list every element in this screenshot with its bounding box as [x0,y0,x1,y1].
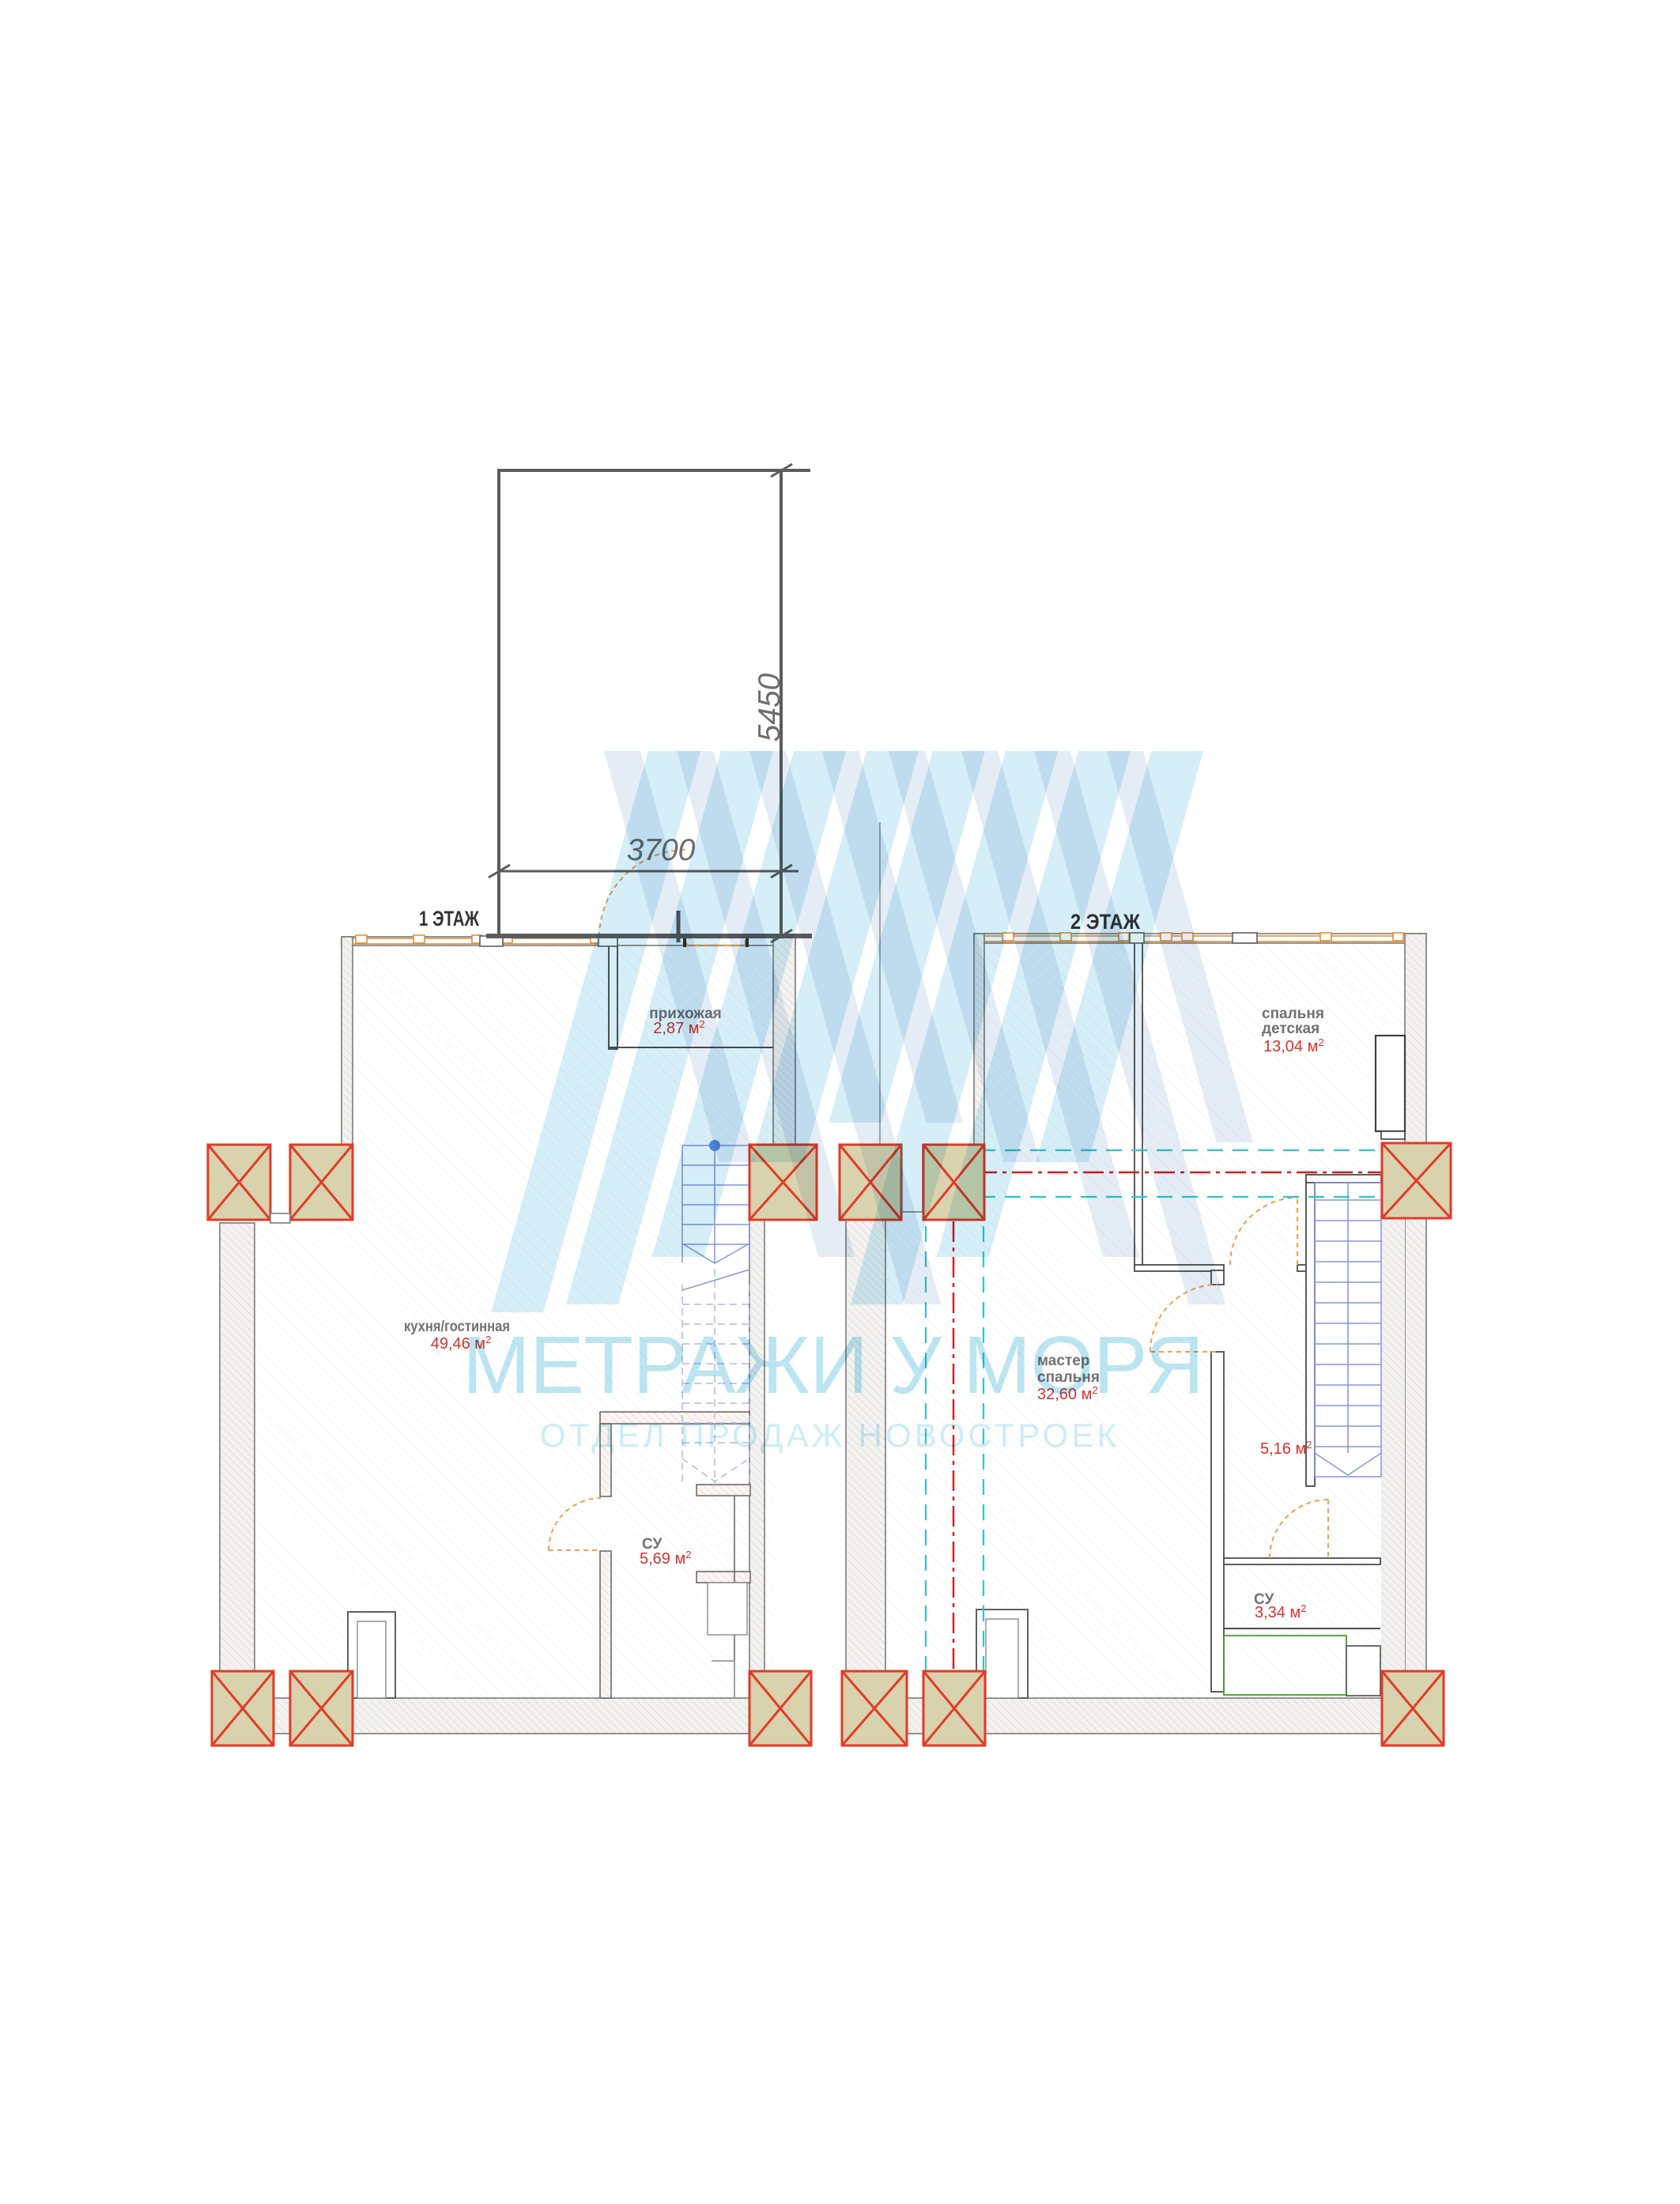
svg-text:3,34 м2: 3,34 м2 [1255,1602,1306,1621]
svg-text:детская: детская [1262,1021,1319,1037]
svg-text:1 ЭТАЖ: 1 ЭТАЖ [419,907,479,930]
svg-text:ОТДЕЛ ПРОДАЖ НОВОСТРОЕК: ОТДЕЛ ПРОДАЖ НОВОСТРОЕК [540,1417,1117,1454]
svg-text:МЕТРАЖИ У МОРЯ: МЕТРАЖИ У МОРЯ [462,1319,1204,1410]
svg-text:13,04 м2: 13,04 м2 [1263,1036,1324,1055]
svg-text:спальня: спальня [1262,1006,1324,1022]
svg-text:5450: 5450 [753,673,787,742]
svg-text:5,16 м2: 5,16 м2 [1260,1439,1312,1458]
svg-text:5,69 м2: 5,69 м2 [640,1549,691,1568]
